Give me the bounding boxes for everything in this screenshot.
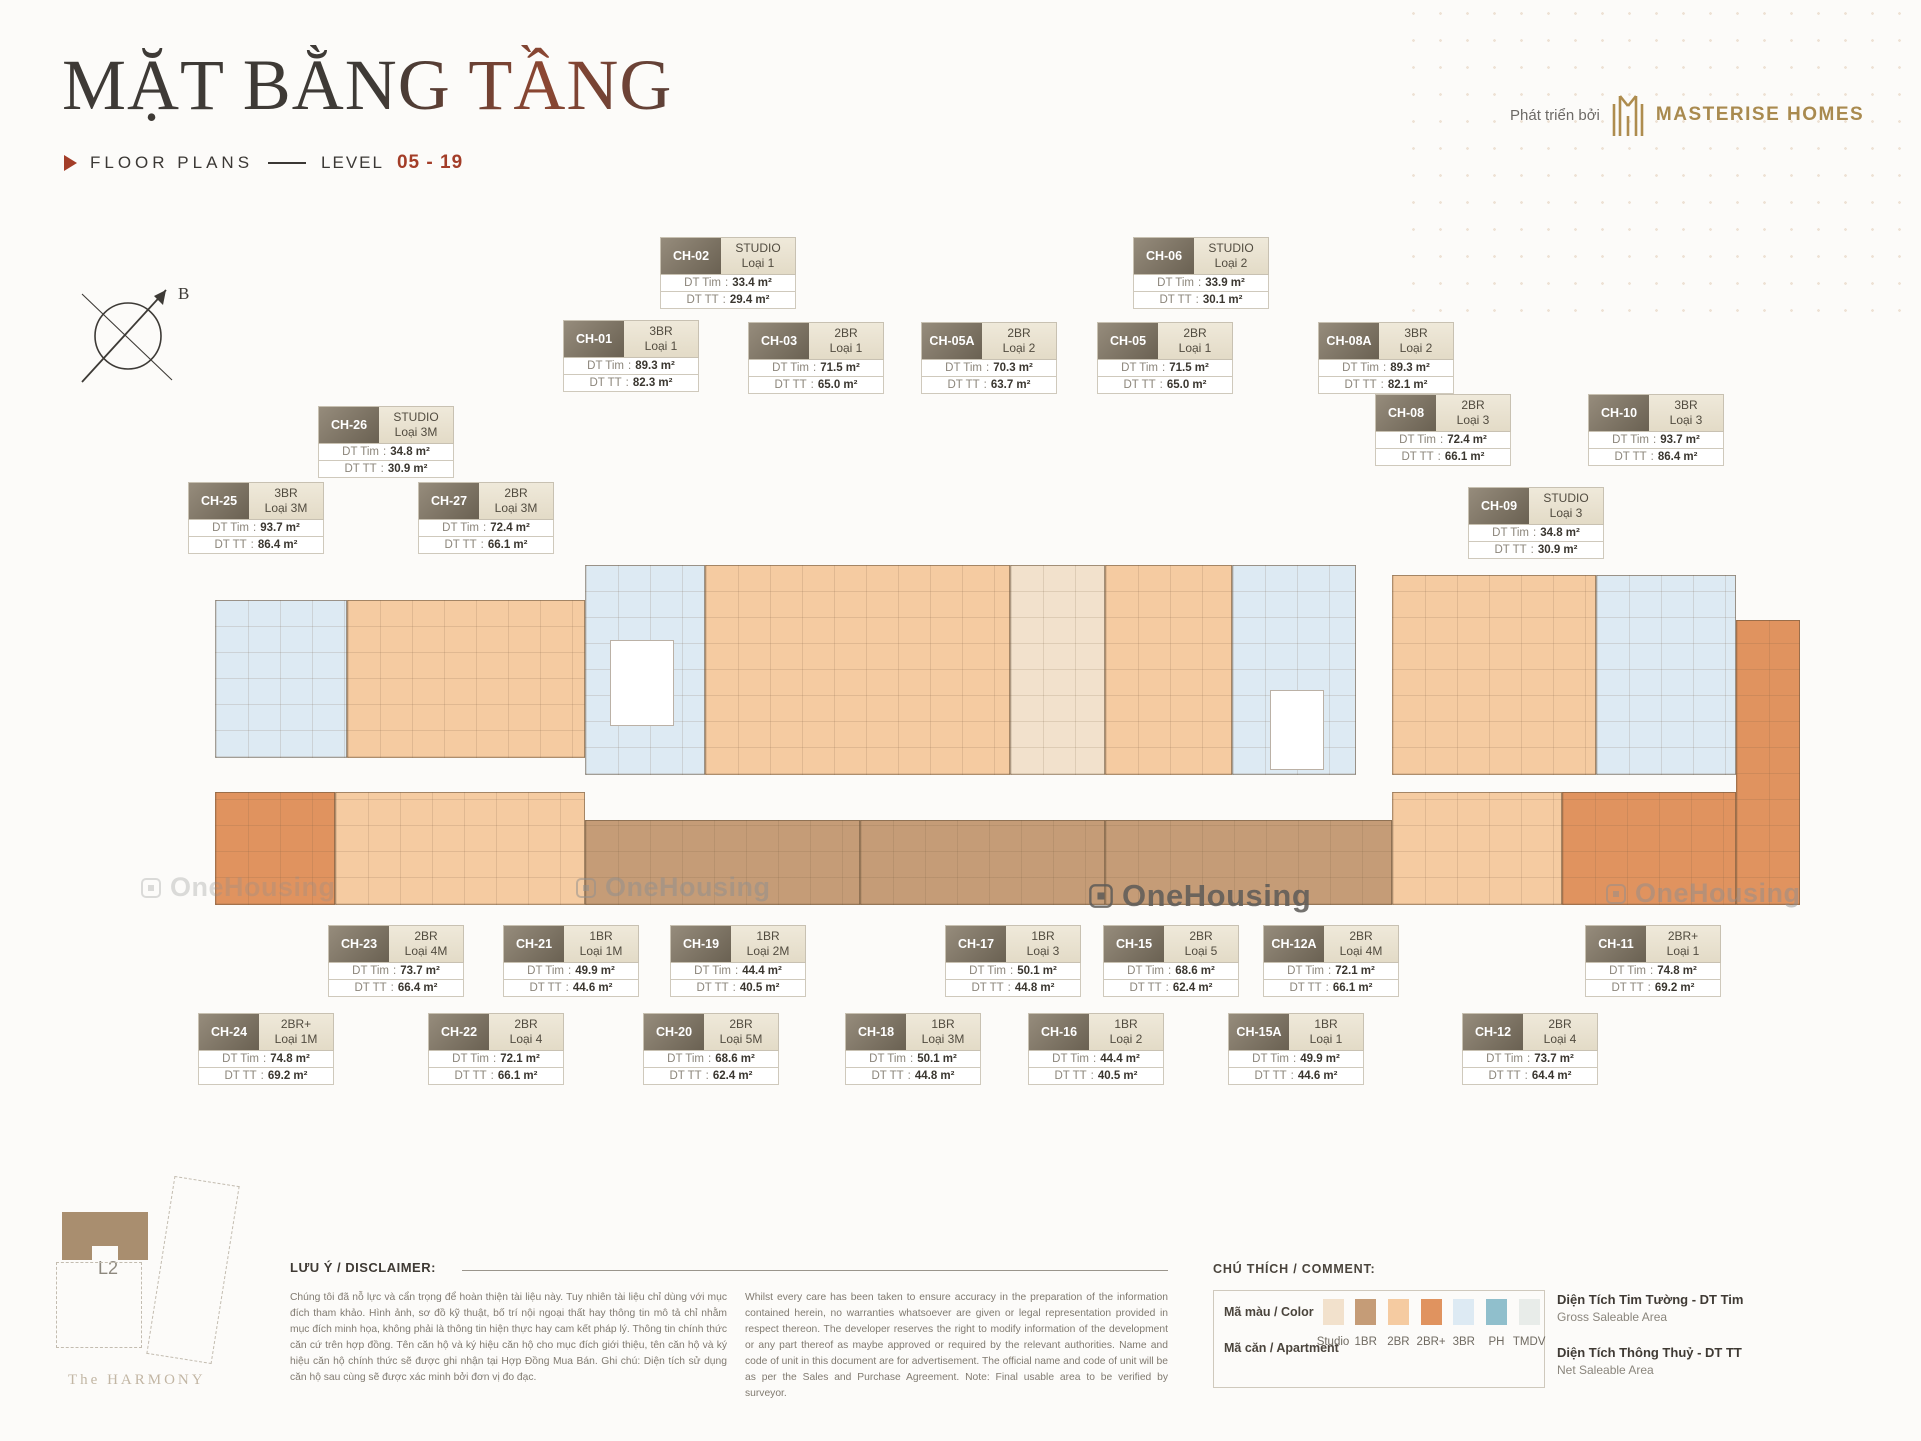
unit-variant: Loại 1 xyxy=(742,256,775,271)
dt-tim-value: 71.5 m² xyxy=(820,362,860,374)
dt-tim-label: DT Tim xyxy=(527,965,564,977)
dt-tt-value: 86.4 m² xyxy=(258,539,298,551)
colon: : xyxy=(984,379,987,391)
unit-type: 1BR Loại 2 xyxy=(1089,1014,1163,1050)
onehousing-logo-icon xyxy=(575,877,597,899)
dt-tim-value: 72.4 m² xyxy=(490,522,530,534)
unit-type: STUDIO Loại 1 xyxy=(721,238,795,274)
unit-label: CH-11 2BR+ Loại 1 DT Tim:74.8 m² DT TT:6… xyxy=(1585,925,1721,997)
dt-tim-label: DT Tim xyxy=(352,965,389,977)
dt-tim-value: 44.4 m² xyxy=(742,965,782,977)
unit-label: CH-05 2BR Loại 1 DT Tim:71.5 m² DT TT:65… xyxy=(1097,322,1233,394)
unit-label-header: CH-03 2BR Loại 1 xyxy=(748,322,884,360)
net-area-row: DT TT:63.7 m² xyxy=(921,377,1057,394)
disclaimer-vietnamese: Chúng tôi đã nỗ lực và cẩn trọng để hoàn… xyxy=(290,1290,727,1386)
legend-box: Mã màu / Color Mã căn / Apartment Studio… xyxy=(1213,1290,1545,1388)
building-l2-footprint xyxy=(118,1246,148,1260)
unit-label-header: CH-11 2BR+ Loại 1 xyxy=(1585,925,1721,963)
colon: : xyxy=(1093,1053,1096,1065)
dt-tim-label: DT Tim xyxy=(1612,434,1649,446)
dt-tim-value: 70.3 m² xyxy=(993,362,1033,374)
unit-code: CH-22 xyxy=(429,1014,489,1050)
unit-label-header: CH-20 2BR Loại 5M xyxy=(643,1013,779,1051)
unit-bedroom-type: 2BR xyxy=(834,326,857,341)
gross-area-row: DT Tim:68.6 m² xyxy=(643,1051,779,1068)
net-area-row: DT TT:66.4 m² xyxy=(328,980,464,997)
dt-tt-value: 40.5 m² xyxy=(1098,1070,1138,1082)
unit-code: CH-05A xyxy=(922,323,982,359)
unit-label-header: CH-18 1BR Loại 3M xyxy=(845,1013,981,1051)
dt-tt-label: DT TT xyxy=(669,1070,701,1082)
onehousing-watermark: OneHousing xyxy=(575,872,771,903)
colon: : xyxy=(1531,544,1534,556)
dt-tt-value: 86.4 m² xyxy=(1658,451,1698,463)
colon: : xyxy=(626,377,629,389)
legend-color-swatch xyxy=(1519,1299,1540,1325)
unit-type: 2BR Loại 4M xyxy=(1324,926,1398,962)
dt-tim-value: 72.1 m² xyxy=(1335,965,1375,977)
unit-code: CH-25 xyxy=(189,483,249,519)
unit-code: CH-16 xyxy=(1029,1014,1089,1050)
unit-bedroom-type: 2BR xyxy=(514,1017,537,1032)
unit-label: CH-25 3BR Loại 3M DT Tim:93.7 m² DT TT:8… xyxy=(188,482,324,554)
dt-tim-value: 72.4 m² xyxy=(1447,434,1487,446)
unit-type: 2BR Loại 1 xyxy=(1158,323,1232,359)
gross-area-row: DT Tim:44.4 m² xyxy=(670,963,806,980)
colon: : xyxy=(628,360,631,372)
dt-tt-value: 65.0 m² xyxy=(818,379,858,391)
unit-label: CH-02 STUDIO Loại 1 DT Tim:33.4 m² DT TT… xyxy=(660,237,796,309)
gross-area-row: DT Tim:68.6 m² xyxy=(1103,963,1239,980)
net-area-row: DT TT:69.2 m² xyxy=(198,1068,334,1085)
unit-label-header: CH-06 STUDIO Loại 2 xyxy=(1133,237,1269,275)
unit-variant: Loại 1 xyxy=(645,339,678,354)
dt-tt-value: 30.9 m² xyxy=(388,463,428,475)
unit-label-header: CH-01 3BR Loại 1 xyxy=(563,320,699,358)
colon: : xyxy=(251,539,254,551)
unit-label: CH-15 2BR Loại 5 DT Tim:68.6 m² DT TT:62… xyxy=(1103,925,1239,997)
colon: : xyxy=(1525,1070,1528,1082)
unit-type: 2BR+ Loại 1M xyxy=(259,1014,333,1050)
gross-area-row: DT Tim:44.4 m² xyxy=(1028,1051,1164,1068)
gross-area-row: DT Tim:71.5 m² xyxy=(1097,360,1233,377)
building-l2-footprint xyxy=(62,1212,148,1246)
dt-tt-label: DT TT xyxy=(1344,379,1376,391)
colon: : xyxy=(393,965,396,977)
unit-label: CH-08A 3BR Loại 2 DT Tim:89.3 m² DT TT:8… xyxy=(1318,322,1454,394)
plan-block-3br xyxy=(1596,575,1736,775)
gross-area-row: DT Tim:72.1 m² xyxy=(1263,963,1399,980)
unit-code: CH-18 xyxy=(846,1014,906,1050)
plan-block-2br xyxy=(347,600,585,758)
unit-bedroom-type: 2BR xyxy=(1183,326,1206,341)
dt-tim-label: DT Tim xyxy=(1342,362,1379,374)
dt-tt-value: 66.1 m² xyxy=(488,539,528,551)
unit-variant: Loại 4 xyxy=(510,1032,543,1047)
unit-label-header: CH-26 STUDIO Loại 3M xyxy=(318,406,454,444)
dt-tt-label: DT TT xyxy=(696,982,728,994)
dt-tim-value: 68.6 m² xyxy=(1175,965,1215,977)
dt-tt-label: DT TT xyxy=(947,379,979,391)
gross-area-row: DT Tim:93.7 m² xyxy=(188,520,324,537)
unit-code: CH-06 xyxy=(1134,238,1194,274)
unit-label: CH-21 1BR Loại 1M DT Tim:49.9 m² DT TT:4… xyxy=(503,925,639,997)
floor-plan-page: MẶT BẰNG TẦNG FLOOR PLANS LEVEL 05 - 19 … xyxy=(0,0,1921,1441)
dt-tt-value: 66.1 m² xyxy=(498,1070,538,1082)
unit-type: 3BR Loại 1 xyxy=(624,321,698,357)
net-area-row: DT TT:30.9 m² xyxy=(1468,542,1604,559)
unit-label: CH-23 2BR Loại 4M DT Tim:73.7 m² DT TT:6… xyxy=(328,925,464,997)
dt-tt-value: 66.1 m² xyxy=(1333,982,1373,994)
unit-bedroom-type: 2BR xyxy=(1189,929,1212,944)
plan-block-2br xyxy=(1392,792,1562,905)
net-area-row: DT TT:66.1 m² xyxy=(1375,449,1511,466)
dt-tim-label: DT Tim xyxy=(945,362,982,374)
onehousing-watermark: OneHousing xyxy=(140,872,336,903)
unit-bedroom-type: 2BR+ xyxy=(1668,929,1698,944)
unit-label: CH-16 1BR Loại 2 DT Tim:44.4 m² DT TT:40… xyxy=(1028,1013,1164,1085)
dt-tt-value: 30.9 m² xyxy=(1538,544,1578,556)
unit-code: CH-12 xyxy=(1463,1014,1523,1050)
net-area-definition: Diện Tích Thông Thuỷ - DT TT Net Saleabl… xyxy=(1557,1345,1897,1377)
unit-code: CH-15A xyxy=(1229,1014,1289,1050)
dt-tt-value: 29.4 m² xyxy=(730,294,770,306)
colon: : xyxy=(1293,1053,1296,1065)
unit-bedroom-type: 3BR xyxy=(1674,398,1697,413)
unit-code: CH-24 xyxy=(199,1014,259,1050)
plan-block-1br xyxy=(860,820,1105,905)
colon: : xyxy=(986,362,989,374)
net-area-row: DT TT:29.4 m² xyxy=(660,292,796,309)
unit-bedroom-type: 1BR xyxy=(589,929,612,944)
unit-bedroom-type: STUDIO xyxy=(735,241,780,256)
unit-variant: Loại 4M xyxy=(1340,944,1383,959)
dt-tim-value: 49.9 m² xyxy=(1300,1053,1340,1065)
dt-tt-label: DT TT xyxy=(1494,544,1526,556)
unit-label-header: CH-25 3BR Loại 3M xyxy=(188,482,324,520)
colon: : xyxy=(1196,294,1199,306)
unit-variant: Loại 5 xyxy=(1185,944,1218,959)
unit-label: CH-12 2BR Loại 4 DT Tim:73.7 m² DT TT:64… xyxy=(1462,1013,1598,1085)
gross-area-row: DT Tim:49.9 m² xyxy=(503,963,639,980)
unit-bedroom-type: 2BR xyxy=(1007,326,1030,341)
dt-tt-value: 66.1 m² xyxy=(1445,451,1485,463)
unit-bedroom-type: 2BR xyxy=(1461,398,1484,413)
colon: : xyxy=(910,1053,913,1065)
dt-tim-label: DT Tim xyxy=(1486,1053,1523,1065)
dt-tt-label: DT TT xyxy=(774,379,806,391)
unit-code: CH-03 xyxy=(749,323,809,359)
legend-item: TMDV xyxy=(1507,1299,1551,1348)
unit-type: 2BR Loại 4 xyxy=(489,1014,563,1050)
dt-tim-value: 74.8 m² xyxy=(1657,965,1697,977)
unit-bedroom-type: 1BR xyxy=(756,929,779,944)
net-area-row: DT TT:66.1 m² xyxy=(428,1068,564,1085)
colon: : xyxy=(1198,277,1201,289)
unit-code: CH-23 xyxy=(329,926,389,962)
unit-label: CH-09 STUDIO Loại 3 DT Tim:34.8 m² DT TT… xyxy=(1468,487,1604,559)
dt-tim-value: 68.6 m² xyxy=(715,1053,755,1065)
unit-type: STUDIO Loại 3 xyxy=(1529,488,1603,524)
unit-bedroom-type: 2BR xyxy=(1548,1017,1571,1032)
colon: : xyxy=(1651,451,1654,463)
unit-variant: Loại 1M xyxy=(275,1032,318,1047)
unit-bedroom-type: 1BR xyxy=(1031,929,1054,944)
dt-tt-label: DT TT xyxy=(871,1070,903,1082)
unit-variant: Loại 4 xyxy=(1544,1032,1577,1047)
unit-type: 2BR Loại 2 xyxy=(982,323,1056,359)
dt-tt-value: 69.2 m² xyxy=(1655,982,1695,994)
dt-tt-value: 63.7 m² xyxy=(991,379,1031,391)
unit-code: CH-19 xyxy=(671,926,731,962)
net-area-row: DT TT:66.1 m² xyxy=(1263,980,1399,997)
dt-tt-label: DT TT xyxy=(454,1070,486,1082)
unit-type: 2BR Loại 5M xyxy=(704,1014,778,1050)
unit-type: 3BR Loại 2 xyxy=(1379,323,1453,359)
unit-type: STUDIO Loại 3M xyxy=(379,407,453,443)
onehousing-logo-icon xyxy=(1088,883,1114,909)
gross-area-row: DT Tim:89.3 m² xyxy=(1318,360,1454,377)
legend-color-swatch xyxy=(1388,1299,1409,1325)
colon: : xyxy=(483,522,486,534)
dt-tim-label: DT Tim xyxy=(1157,277,1194,289)
legend-item-label: TMDV xyxy=(1507,1336,1551,1348)
dt-tim-label: DT Tim xyxy=(1399,434,1436,446)
unit-label-header: CH-27 2BR Loại 3M xyxy=(418,482,554,520)
gross-area-row: DT Tim:74.8 m² xyxy=(198,1051,334,1068)
onehousing-watermark: OneHousing xyxy=(1088,878,1311,914)
unit-variant: Loại 1 xyxy=(1310,1032,1343,1047)
dt-tim-value: 89.3 m² xyxy=(635,360,675,372)
unit-bedroom-type: 2BR xyxy=(729,1017,752,1032)
unit-variant: Loại 3M xyxy=(395,425,438,440)
colon: : xyxy=(1533,527,1536,539)
unit-label: CH-08 2BR Loại 3 DT Tim:72.4 m² DT TT:66… xyxy=(1375,394,1511,466)
dt-tt-label: DT TT xyxy=(1488,1070,1520,1082)
dt-tim-label: DT Tim xyxy=(772,362,809,374)
legend-color-swatch xyxy=(1323,1299,1344,1325)
colon: : xyxy=(708,1053,711,1065)
dt-tim-value: 34.8 m² xyxy=(390,446,430,458)
unit-bedroom-type: 2BR+ xyxy=(281,1017,311,1032)
unit-bedroom-type: 1BR xyxy=(1314,1017,1337,1032)
unit-label-header: CH-16 1BR Loại 2 xyxy=(1028,1013,1164,1051)
dt-tt-value: 44.6 m² xyxy=(573,982,613,994)
dt-tt-label: DT TT xyxy=(971,982,1003,994)
net-area-row: DT TT:66.1 m² xyxy=(418,537,554,554)
net-area-row: DT TT:65.0 m² xyxy=(748,377,884,394)
dt-tt-label: DT TT xyxy=(224,1070,256,1082)
dt-tim-label: DT Tim xyxy=(1052,1053,1089,1065)
dt-tim-label: DT Tim xyxy=(667,1053,704,1065)
unit-label: CH-17 1BR Loại 3 DT Tim:50.1 m² DT TT:44… xyxy=(945,925,1081,997)
colon: : xyxy=(566,982,569,994)
gross-area-row: DT Tim:34.8 m² xyxy=(1468,525,1604,542)
onehousing-logo-icon xyxy=(1605,883,1627,905)
unit-label-header: CH-12A 2BR Loại 4M xyxy=(1263,925,1399,963)
legend-color-row-label: Mã màu / Color xyxy=(1224,1305,1314,1319)
dt-tt-label: DT TT xyxy=(1614,451,1646,463)
dt-tt-label: DT TT xyxy=(1123,379,1155,391)
net-area-row: DT TT:40.5 m² xyxy=(1028,1068,1164,1085)
dt-tim-value: 71.5 m² xyxy=(1169,362,1209,374)
dt-tim-value: 73.7 m² xyxy=(400,965,440,977)
gross-area-row: DT Tim:34.8 m² xyxy=(318,444,454,461)
unit-bedroom-type: STUDIO xyxy=(393,410,438,425)
gross-area-row: DT Tim:33.9 m² xyxy=(1133,275,1269,292)
unit-bedroom-type: 3BR xyxy=(649,324,672,339)
unit-variant: Loại 3M xyxy=(495,501,538,516)
unit-code: CH-08 xyxy=(1376,395,1436,431)
colon: : xyxy=(481,539,484,551)
net-area-row: DT TT:62.4 m² xyxy=(1103,980,1239,997)
unit-bedroom-type: 2BR xyxy=(504,486,527,501)
colon: : xyxy=(491,1070,494,1082)
dt-tim-value: 44.4 m² xyxy=(1100,1053,1140,1065)
gross-area-row: DT Tim:72.4 m² xyxy=(1375,432,1511,449)
dt-tim-label: DT Tim xyxy=(452,1053,489,1065)
building-l2-footprint xyxy=(62,1246,92,1260)
dt-tt-value: 64.4 m² xyxy=(1532,1070,1572,1082)
unit-code: CH-09 xyxy=(1469,488,1529,524)
dt-tim-value: 33.9 m² xyxy=(1205,277,1245,289)
dt-tim-label: DT Tim xyxy=(969,965,1006,977)
net-area-row: DT TT:62.4 m² xyxy=(643,1068,779,1085)
dt-tim-label: DT Tim xyxy=(442,522,479,534)
gross-area-title: Diện Tích Tim Tường - DT Tim xyxy=(1557,1292,1897,1307)
colon: : xyxy=(1166,982,1169,994)
unit-type: 2BR Loại 4M xyxy=(389,926,463,962)
colon: : xyxy=(908,1070,911,1082)
colon: : xyxy=(1160,379,1163,391)
unit-label: CH-15A 1BR Loại 1 DT Tim:49.9 m² DT TT:4… xyxy=(1228,1013,1364,1085)
dt-tt-label: DT TT xyxy=(529,982,561,994)
dt-tim-label: DT Tim xyxy=(1287,965,1324,977)
unit-code: CH-15 xyxy=(1104,926,1164,962)
dt-tim-value: 93.7 m² xyxy=(260,522,300,534)
unit-variant: Loại 2 xyxy=(1003,341,1036,356)
dt-tim-label: DT Tim xyxy=(222,1053,259,1065)
dt-tim-label: DT Tim xyxy=(684,277,721,289)
unit-label-header: CH-12 2BR Loại 4 xyxy=(1462,1013,1598,1051)
dt-tt-label: DT TT xyxy=(1401,451,1433,463)
net-area-row: DT TT:44.6 m² xyxy=(503,980,639,997)
unit-code: CH-08A xyxy=(1319,323,1379,359)
colon: : xyxy=(723,294,726,306)
dt-tim-value: 50.1 m² xyxy=(1017,965,1057,977)
unit-variant: Loại 2 xyxy=(1215,256,1248,271)
net-area-row: DT TT:86.4 m² xyxy=(188,537,324,554)
dt-tim-label: DT Tim xyxy=(1492,527,1529,539)
unit-label: CH-03 2BR Loại 1 DT Tim:71.5 m² DT TT:65… xyxy=(748,322,884,394)
unit-label-header: CH-15 2BR Loại 5 xyxy=(1103,925,1239,963)
disclaimer-underline xyxy=(462,1270,1168,1271)
unit-bedroom-type: STUDIO xyxy=(1543,491,1588,506)
unit-label-header: CH-02 STUDIO Loại 1 xyxy=(660,237,796,275)
onehousing-watermark: OneHousing xyxy=(1605,878,1801,909)
dt-tt-label: DT TT xyxy=(444,539,476,551)
watermark-text: OneHousing xyxy=(1635,878,1801,909)
unit-label-header: CH-24 2BR+ Loại 1M xyxy=(198,1013,334,1051)
unit-variant: Loại 5M xyxy=(720,1032,763,1047)
colon: : xyxy=(1650,965,1653,977)
unit-type: 1BR Loại 1M xyxy=(564,926,638,962)
colon: : xyxy=(1440,434,1443,446)
dt-tt-value: 82.3 m² xyxy=(633,377,673,389)
net-area-row: DT TT:40.5 m² xyxy=(670,980,806,997)
gross-area-row: DT Tim:72.4 m² xyxy=(418,520,554,537)
colon: : xyxy=(1008,982,1011,994)
colon: : xyxy=(811,379,814,391)
dt-tim-label: DT Tim xyxy=(342,446,379,458)
dt-tim-value: 89.3 m² xyxy=(1390,362,1430,374)
plan-block-2br xyxy=(1105,565,1232,775)
unit-type: 3BR Loại 3M xyxy=(249,483,323,519)
unit-variant: Loại 1M xyxy=(580,944,623,959)
colon: : xyxy=(1010,965,1013,977)
dt-tim-value: 74.8 m² xyxy=(270,1053,310,1065)
unit-label-header: CH-22 2BR Loại 4 xyxy=(428,1013,564,1051)
net-area-subtitle: Net Saleable Area xyxy=(1557,1363,1897,1377)
gross-area-row: DT Tim:33.4 m² xyxy=(660,275,796,292)
dt-tt-label: DT TT xyxy=(1159,294,1191,306)
dt-tt-value: 62.4 m² xyxy=(713,1070,753,1082)
colon: : xyxy=(383,446,386,458)
dt-tt-value: 69.2 m² xyxy=(268,1070,308,1082)
gross-area-row: DT Tim:89.3 m² xyxy=(563,358,699,375)
colon: : xyxy=(725,277,728,289)
plan-block-studio xyxy=(1010,565,1105,775)
net-area-row: DT TT:44.8 m² xyxy=(845,1068,981,1085)
unit-variant: Loại 1 xyxy=(1179,341,1212,356)
dt-tim-label: DT Tim xyxy=(1127,965,1164,977)
net-area-row: DT TT:65.0 m² xyxy=(1097,377,1233,394)
legend-heading: CHÚ THÍCH / COMMENT: xyxy=(1213,1262,1376,1276)
colon: : xyxy=(813,362,816,374)
unit-code: CH-02 xyxy=(661,238,721,274)
unit-code: CH-01 xyxy=(564,321,624,357)
gross-area-row: DT Tim:70.3 m² xyxy=(921,360,1057,377)
gross-area-row: DT Tim:72.1 m² xyxy=(428,1051,564,1068)
project-name: The HARMONY xyxy=(68,1372,206,1389)
gross-area-row: DT Tim:71.5 m² xyxy=(748,360,884,377)
unit-label: CH-05A 2BR Loại 2 DT Tim:70.3 m² DT TT:6… xyxy=(921,322,1057,394)
colon: : xyxy=(261,1070,264,1082)
plan-block-2br xyxy=(1392,575,1596,775)
colon: : xyxy=(735,965,738,977)
unit-type: 2BR Loại 3M xyxy=(479,483,553,519)
net-area-row: DT TT:82.3 m² xyxy=(563,375,699,392)
colon: : xyxy=(253,522,256,534)
gross-area-row: DT Tim:50.1 m² xyxy=(845,1051,981,1068)
net-area-row: DT TT:44.6 m² xyxy=(1228,1068,1364,1085)
unit-variant: Loại 3M xyxy=(265,501,308,516)
legend-color-swatch xyxy=(1486,1299,1507,1325)
plan-block-3br xyxy=(215,600,347,758)
gross-area-subtitle: Gross Saleable Area xyxy=(1557,1310,1897,1324)
dt-tt-label: DT TT xyxy=(1254,1070,1286,1082)
unit-label: CH-06 STUDIO Loại 2 DT Tim:33.9 m² DT TT… xyxy=(1133,237,1269,309)
plan-block-2br xyxy=(335,792,585,905)
unit-variant: Loại 1 xyxy=(1667,944,1700,959)
unit-type: 2BR Loại 1 xyxy=(809,323,883,359)
unit-code: CH-12A xyxy=(1264,926,1324,962)
dt-tt-label: DT TT xyxy=(589,377,621,389)
unit-variant: Loại 1 xyxy=(830,341,863,356)
dt-tt-value: 30.1 m² xyxy=(1203,294,1243,306)
onehousing-logo-icon xyxy=(140,877,162,899)
unit-bedroom-type: 2BR xyxy=(1349,929,1372,944)
